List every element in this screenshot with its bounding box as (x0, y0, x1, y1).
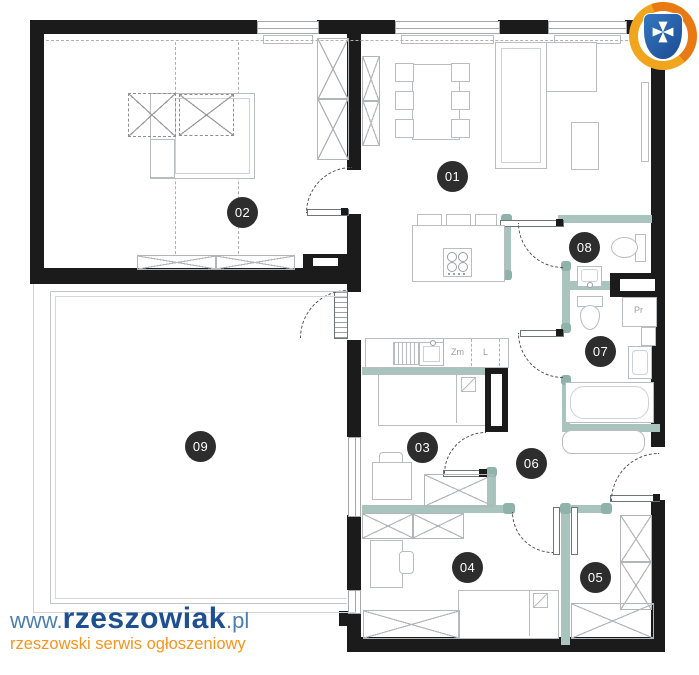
hall-rug (562, 430, 645, 454)
toilet-bowl (611, 237, 638, 258)
window (395, 21, 500, 34)
kitchen-sink (419, 342, 444, 366)
wardrobe-projection (128, 93, 176, 137)
toilet-bowl (580, 305, 600, 330)
wardrobe (362, 56, 380, 102)
bathtub (565, 382, 654, 423)
site-url: www.rzeszowiak.pl (10, 603, 249, 635)
sofa-chaise (495, 42, 547, 169)
room-label-08: 08 (569, 232, 600, 263)
radiator (215, 255, 295, 270)
room-label-05: 05 (580, 562, 611, 593)
cabinet-divider (499, 339, 500, 366)
coffee-table (571, 122, 599, 170)
wall-top-c (498, 20, 548, 34)
dish-drainer (393, 342, 419, 365)
wardrobe-projection (179, 94, 234, 136)
cooktop (443, 248, 472, 277)
wardrobe (412, 513, 464, 539)
chair (399, 551, 414, 574)
door-arc-wc (518, 223, 563, 268)
door-portal (485, 368, 508, 432)
radiator (641, 82, 649, 162)
bed-single (458, 590, 559, 639)
wardrobe (424, 474, 494, 507)
rzeszow-crest-icon (629, 2, 697, 70)
wall-bottom (347, 637, 665, 652)
wall-divider-02-01 (347, 20, 361, 170)
partition-04-05 (561, 505, 570, 645)
site-name: rzeszowiak (63, 603, 226, 635)
nightstand (150, 139, 175, 178)
room-label-07: 07 (585, 336, 616, 367)
shaft-bathrooms (610, 273, 663, 297)
wall-pilaster (339, 611, 348, 626)
wardrobe (317, 98, 349, 160)
washbasin (577, 266, 602, 287)
door-arc-room04 (512, 512, 553, 553)
boiler (641, 327, 656, 346)
url-prefix: www. (10, 609, 63, 632)
shaft-inset (313, 258, 338, 266)
partition-cap (601, 503, 612, 514)
door-arc-room03 (444, 432, 486, 474)
room-label-09: 09 (185, 431, 216, 462)
wall-left (30, 20, 44, 284)
fridge-label: L (472, 347, 499, 357)
chair (395, 91, 414, 110)
chair (451, 63, 470, 82)
desk (372, 462, 412, 500)
chair (395, 63, 414, 82)
wardrobe (620, 515, 652, 563)
room-label-03: 03 (407, 432, 438, 463)
room-label-04: 04 (452, 552, 483, 583)
entrance-door-arc (611, 453, 659, 501)
maltese-cross-icon (650, 19, 676, 45)
wall-hall (347, 214, 361, 292)
window (257, 21, 319, 34)
wardrobe (571, 603, 654, 639)
wardrobe (362, 100, 380, 146)
site-tagline: rzeszowski serwis ogłoszeniowy (10, 636, 249, 653)
radiator (137, 255, 217, 270)
chair (451, 119, 470, 138)
wall-top-a (30, 20, 257, 34)
wardrobe (317, 38, 349, 100)
bathroom-sink (628, 346, 652, 379)
partition-corridor-a (562, 262, 570, 332)
url-suffix: .pl (226, 609, 249, 632)
partition-wc-top (558, 215, 652, 223)
wardrobe (362, 513, 414, 539)
door-arc-room02 (306, 167, 352, 213)
room-label-06: 06 (516, 448, 547, 479)
wardrobe (363, 610, 460, 639)
floorplan: Zm L Pr 01 02 03 04 (0, 0, 699, 675)
washer-label: Pr (622, 305, 655, 315)
bed-single (378, 374, 489, 426)
chair (395, 119, 414, 138)
room-label-01: 01 (437, 161, 468, 192)
shaft-inset (620, 279, 655, 291)
room-label-02: 02 (227, 197, 258, 228)
door-jamb (553, 507, 560, 555)
door-jamb (571, 507, 578, 555)
chair (451, 91, 470, 110)
door-arc-bath (518, 333, 563, 378)
window (548, 21, 627, 34)
site-watermark: www.rzeszowiak.pl rzeszowski serwis ogło… (10, 603, 249, 653)
dishwasher-label: Zm (444, 347, 471, 357)
